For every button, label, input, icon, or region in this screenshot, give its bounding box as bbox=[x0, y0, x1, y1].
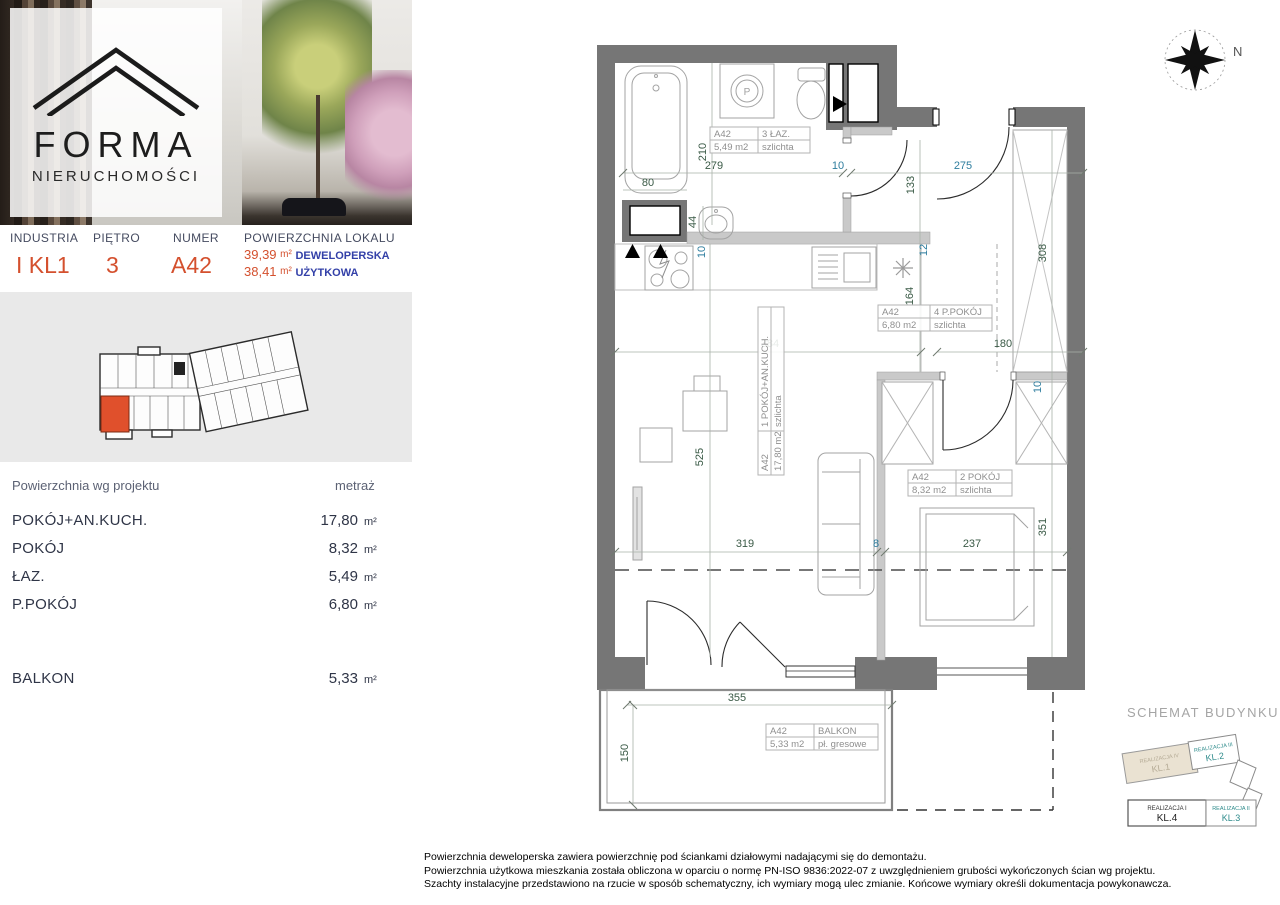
building-schematic: REALIZACJA IV KL.1 REALIZACJA III KL.2 R… bbox=[1122, 734, 1262, 826]
svg-text:6,80 m2: 6,80 m2 bbox=[882, 320, 916, 331]
svg-text:A42: A42 bbox=[912, 472, 929, 483]
svg-text:210: 210 bbox=[697, 143, 709, 161]
dining-table bbox=[640, 376, 727, 462]
svg-text:A42: A42 bbox=[882, 307, 899, 318]
svg-text:8: 8 bbox=[873, 538, 879, 550]
brochure-page: FORMA NIERUCHOMOŚCI INDUSTRIA PIĘTRO NUM… bbox=[0, 0, 1280, 905]
svg-text:275: 275 bbox=[954, 160, 972, 172]
svg-text:pł. gresowe: pł. gresowe bbox=[818, 739, 867, 750]
washer-symbol: P bbox=[744, 87, 751, 98]
svg-text:BALKON: BALKON bbox=[818, 726, 857, 737]
svg-text:REALIZACJA II: REALIZACJA II bbox=[1212, 806, 1250, 812]
compass-north-label: N bbox=[1233, 44, 1242, 59]
svg-text:8,32 m2: 8,32 m2 bbox=[912, 485, 946, 496]
room-label-bedroom: A42 2 POKÓJ 8,32 m2 szlichta bbox=[908, 470, 1012, 496]
footer-line: Powierzchnia deweloperska zawiera powier… bbox=[424, 851, 1254, 865]
svg-text:REALIZACJA I: REALIZACJA I bbox=[1147, 806, 1187, 812]
bedroom-door[interactable] bbox=[940, 372, 1016, 450]
svg-text:szlichta: szlichta bbox=[773, 395, 784, 427]
svg-text:A42: A42 bbox=[714, 129, 731, 140]
svg-text:A42: A42 bbox=[760, 454, 771, 471]
svg-text:10: 10 bbox=[1032, 381, 1044, 393]
svg-text:525: 525 bbox=[694, 448, 706, 466]
svg-text:133: 133 bbox=[905, 176, 917, 194]
footer-line: Szachty instalacyjne przedstawiono na rz… bbox=[424, 878, 1254, 892]
floor-plan: P bbox=[0, 0, 1280, 905]
footer-line: Powierzchnia użytkowa mieszkania została… bbox=[424, 865, 1254, 879]
svg-text:319: 319 bbox=[736, 538, 754, 550]
bathroom-door[interactable] bbox=[843, 138, 907, 198]
kitchen-sink bbox=[812, 247, 876, 288]
svg-text:17,80 m2: 17,80 m2 bbox=[773, 431, 784, 471]
svg-text:3 ŁAZ.: 3 ŁAZ. bbox=[762, 129, 790, 140]
tv-panel bbox=[633, 487, 642, 560]
svg-text:1 POKÓJ+AN.KUCH.: 1 POKÓJ+AN.KUCH. bbox=[760, 336, 771, 427]
room-label-bathroom: A42 3 ŁAZ. 5,49 m2 szlichta bbox=[710, 127, 810, 153]
washing-machine: P bbox=[720, 64, 774, 118]
svg-text:164: 164 bbox=[904, 287, 916, 305]
svg-text:KL.3: KL.3 bbox=[1222, 813, 1241, 823]
footer-disclaimers: Powierzchnia deweloperska zawiera powier… bbox=[424, 851, 1254, 892]
svg-text:5,33 m2: 5,33 m2 bbox=[770, 739, 804, 750]
radiator-symbol bbox=[893, 258, 913, 278]
neighbor-balcony-dashed bbox=[897, 692, 1053, 810]
bathtub bbox=[625, 66, 687, 193]
svg-text:A42: A42 bbox=[770, 726, 787, 737]
schematic-title: SCHEMAT BUDYNKU bbox=[1127, 705, 1279, 720]
compass-icon: N bbox=[1165, 30, 1242, 90]
svg-text:5,49 m2: 5,49 m2 bbox=[714, 142, 748, 153]
toilet bbox=[797, 68, 825, 119]
svg-text:150: 150 bbox=[619, 744, 631, 762]
segment-connector bbox=[1230, 760, 1256, 790]
svg-text:12: 12 bbox=[918, 244, 930, 256]
svg-text:180: 180 bbox=[994, 338, 1012, 350]
cooktop bbox=[645, 246, 693, 290]
svg-text:2 POKÓJ: 2 POKÓJ bbox=[960, 472, 1000, 483]
svg-text:237: 237 bbox=[963, 538, 981, 550]
svg-text:szlichta: szlichta bbox=[762, 142, 794, 153]
walls bbox=[597, 45, 1085, 690]
svg-text:10: 10 bbox=[832, 160, 844, 172]
sofa bbox=[818, 453, 874, 595]
bed bbox=[920, 508, 1034, 626]
svg-text:355: 355 bbox=[728, 692, 746, 704]
svg-text:351: 351 bbox=[1037, 518, 1049, 536]
svg-text:szlichta: szlichta bbox=[934, 320, 966, 331]
svg-text:44: 44 bbox=[687, 216, 699, 228]
entrance-door[interactable] bbox=[933, 109, 1015, 199]
svg-text:10: 10 bbox=[696, 246, 708, 258]
svg-text:KL.4: KL.4 bbox=[1157, 813, 1178, 824]
room-label-living: A42 1 POKÓJ+AN.KUCH. 17,80 m2 szlichta bbox=[758, 307, 784, 475]
partitions bbox=[687, 127, 1067, 660]
room-label-hall: A42 4 P.POKÓJ 6,80 m2 szlichta bbox=[878, 305, 992, 331]
balcony-door[interactable] bbox=[647, 601, 855, 677]
vent-arrow-icon bbox=[625, 244, 640, 258]
svg-text:4 P.POKÓJ: 4 P.POKÓJ bbox=[934, 307, 982, 318]
room-label-balcony: A42 BALKON 5,33 m2 pł. gresowe bbox=[766, 724, 878, 750]
svg-text:80: 80 bbox=[642, 177, 654, 189]
bedroom-window bbox=[937, 668, 1027, 675]
svg-text:szlichta: szlichta bbox=[960, 485, 992, 496]
svg-text:308: 308 bbox=[1037, 244, 1049, 262]
